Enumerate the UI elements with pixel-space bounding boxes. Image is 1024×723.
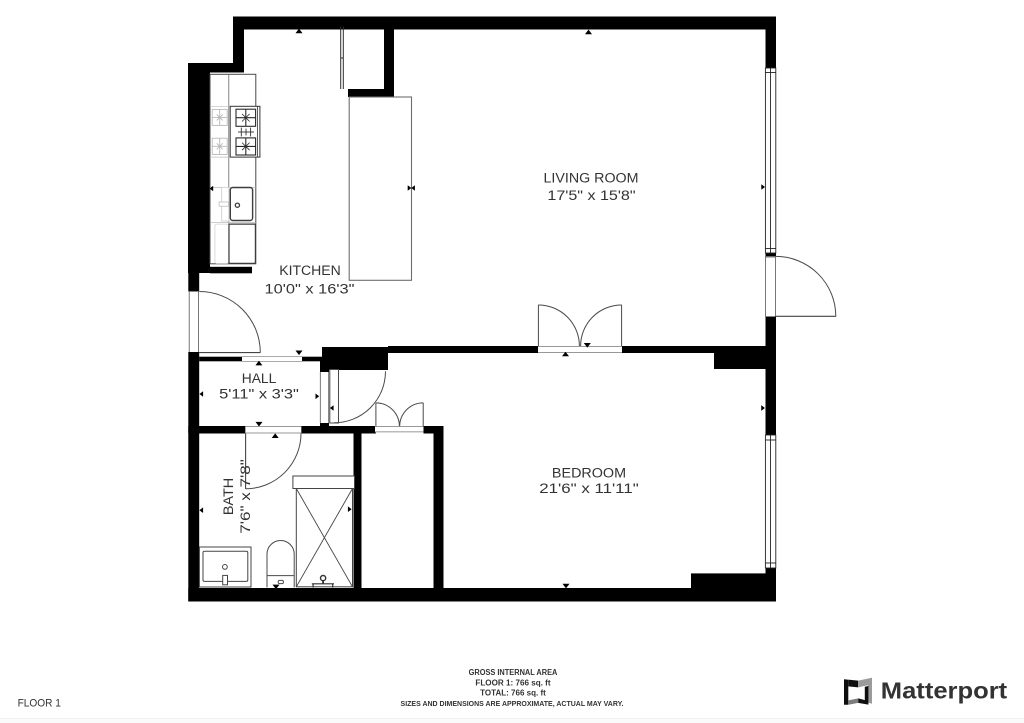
svg-text:KITCHEN: KITCHEN: [279, 263, 341, 278]
svg-text:FLOOR 1: 766 sq. ft: FLOOR 1: 766 sq. ft: [475, 678, 551, 687]
svg-text:7'6" x 7'8": 7'6" x 7'8": [238, 459, 253, 534]
svg-text:BEDROOM: BEDROOM: [552, 466, 626, 481]
svg-text:FLOOR 1: FLOOR 1: [18, 697, 61, 709]
svg-text:LIVING ROOM: LIVING ROOM: [544, 171, 639, 186]
svg-text:21'6" x 11'11": 21'6" x 11'11": [539, 481, 639, 496]
svg-text:17'5" x 15'8": 17'5" x 15'8": [547, 188, 635, 203]
svg-text:Matterport: Matterport: [881, 678, 1008, 704]
svg-text:10'0" x 16'3": 10'0" x 16'3": [265, 282, 355, 297]
svg-text:5'11" x 3'3": 5'11" x 3'3": [219, 387, 299, 402]
svg-text:HALL: HALL: [242, 371, 277, 386]
svg-text:SIZES AND DIMENSIONS ARE APPRO: SIZES AND DIMENSIONS ARE APPROXIMATE, AC…: [401, 699, 624, 708]
svg-text:GROSS INTERNAL AREA: GROSS INTERNAL AREA: [469, 668, 558, 677]
svg-text:TOTAL: 766 sq. ft: TOTAL: 766 sq. ft: [480, 689, 546, 698]
svg-text:BATH: BATH: [221, 478, 236, 515]
